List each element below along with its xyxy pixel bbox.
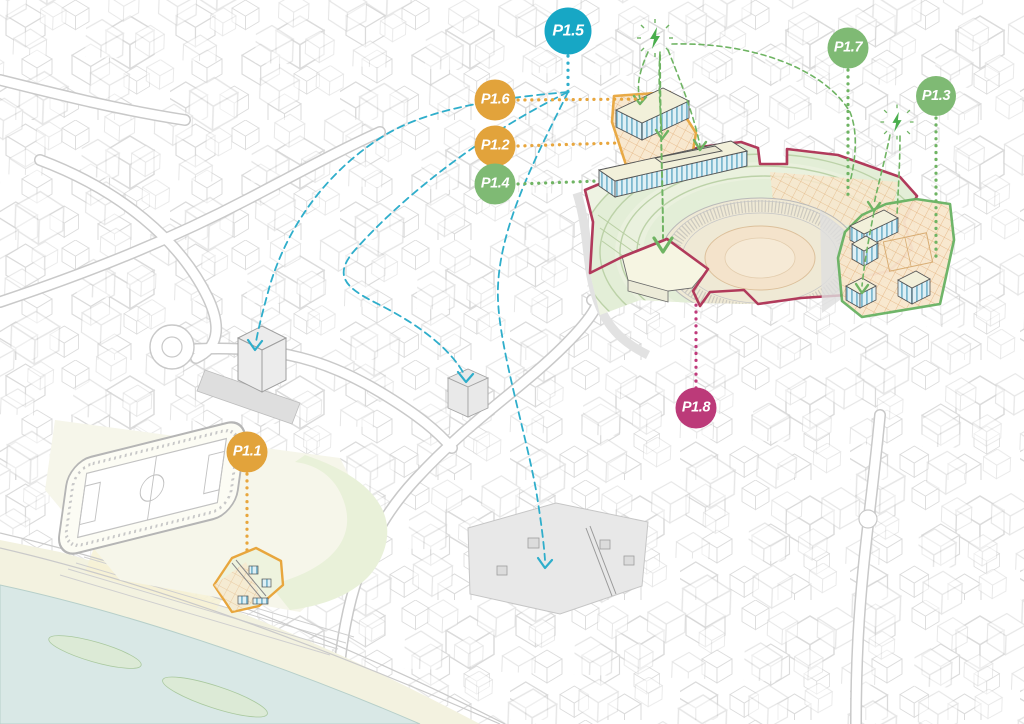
marker-p1-6: P1.6 xyxy=(475,80,516,121)
marker-p1-8: P1.8 xyxy=(676,388,717,429)
marker-p1-3: P1.3 xyxy=(916,76,956,116)
masterplan-canvas: P1.5 P1.6 P1.2 P1.4 P1.7 P1.3 P1.8 P1.1 xyxy=(0,0,1024,724)
marker-p1-4: P1.4 xyxy=(475,164,516,205)
roundabout-small xyxy=(859,510,877,528)
marker-p1-1: P1.1 xyxy=(227,432,268,473)
marker-p1-7: P1.7 xyxy=(828,28,869,69)
marker-p1-2: P1.2 xyxy=(475,126,516,167)
marker-p1-5: P1.5 xyxy=(545,8,592,55)
